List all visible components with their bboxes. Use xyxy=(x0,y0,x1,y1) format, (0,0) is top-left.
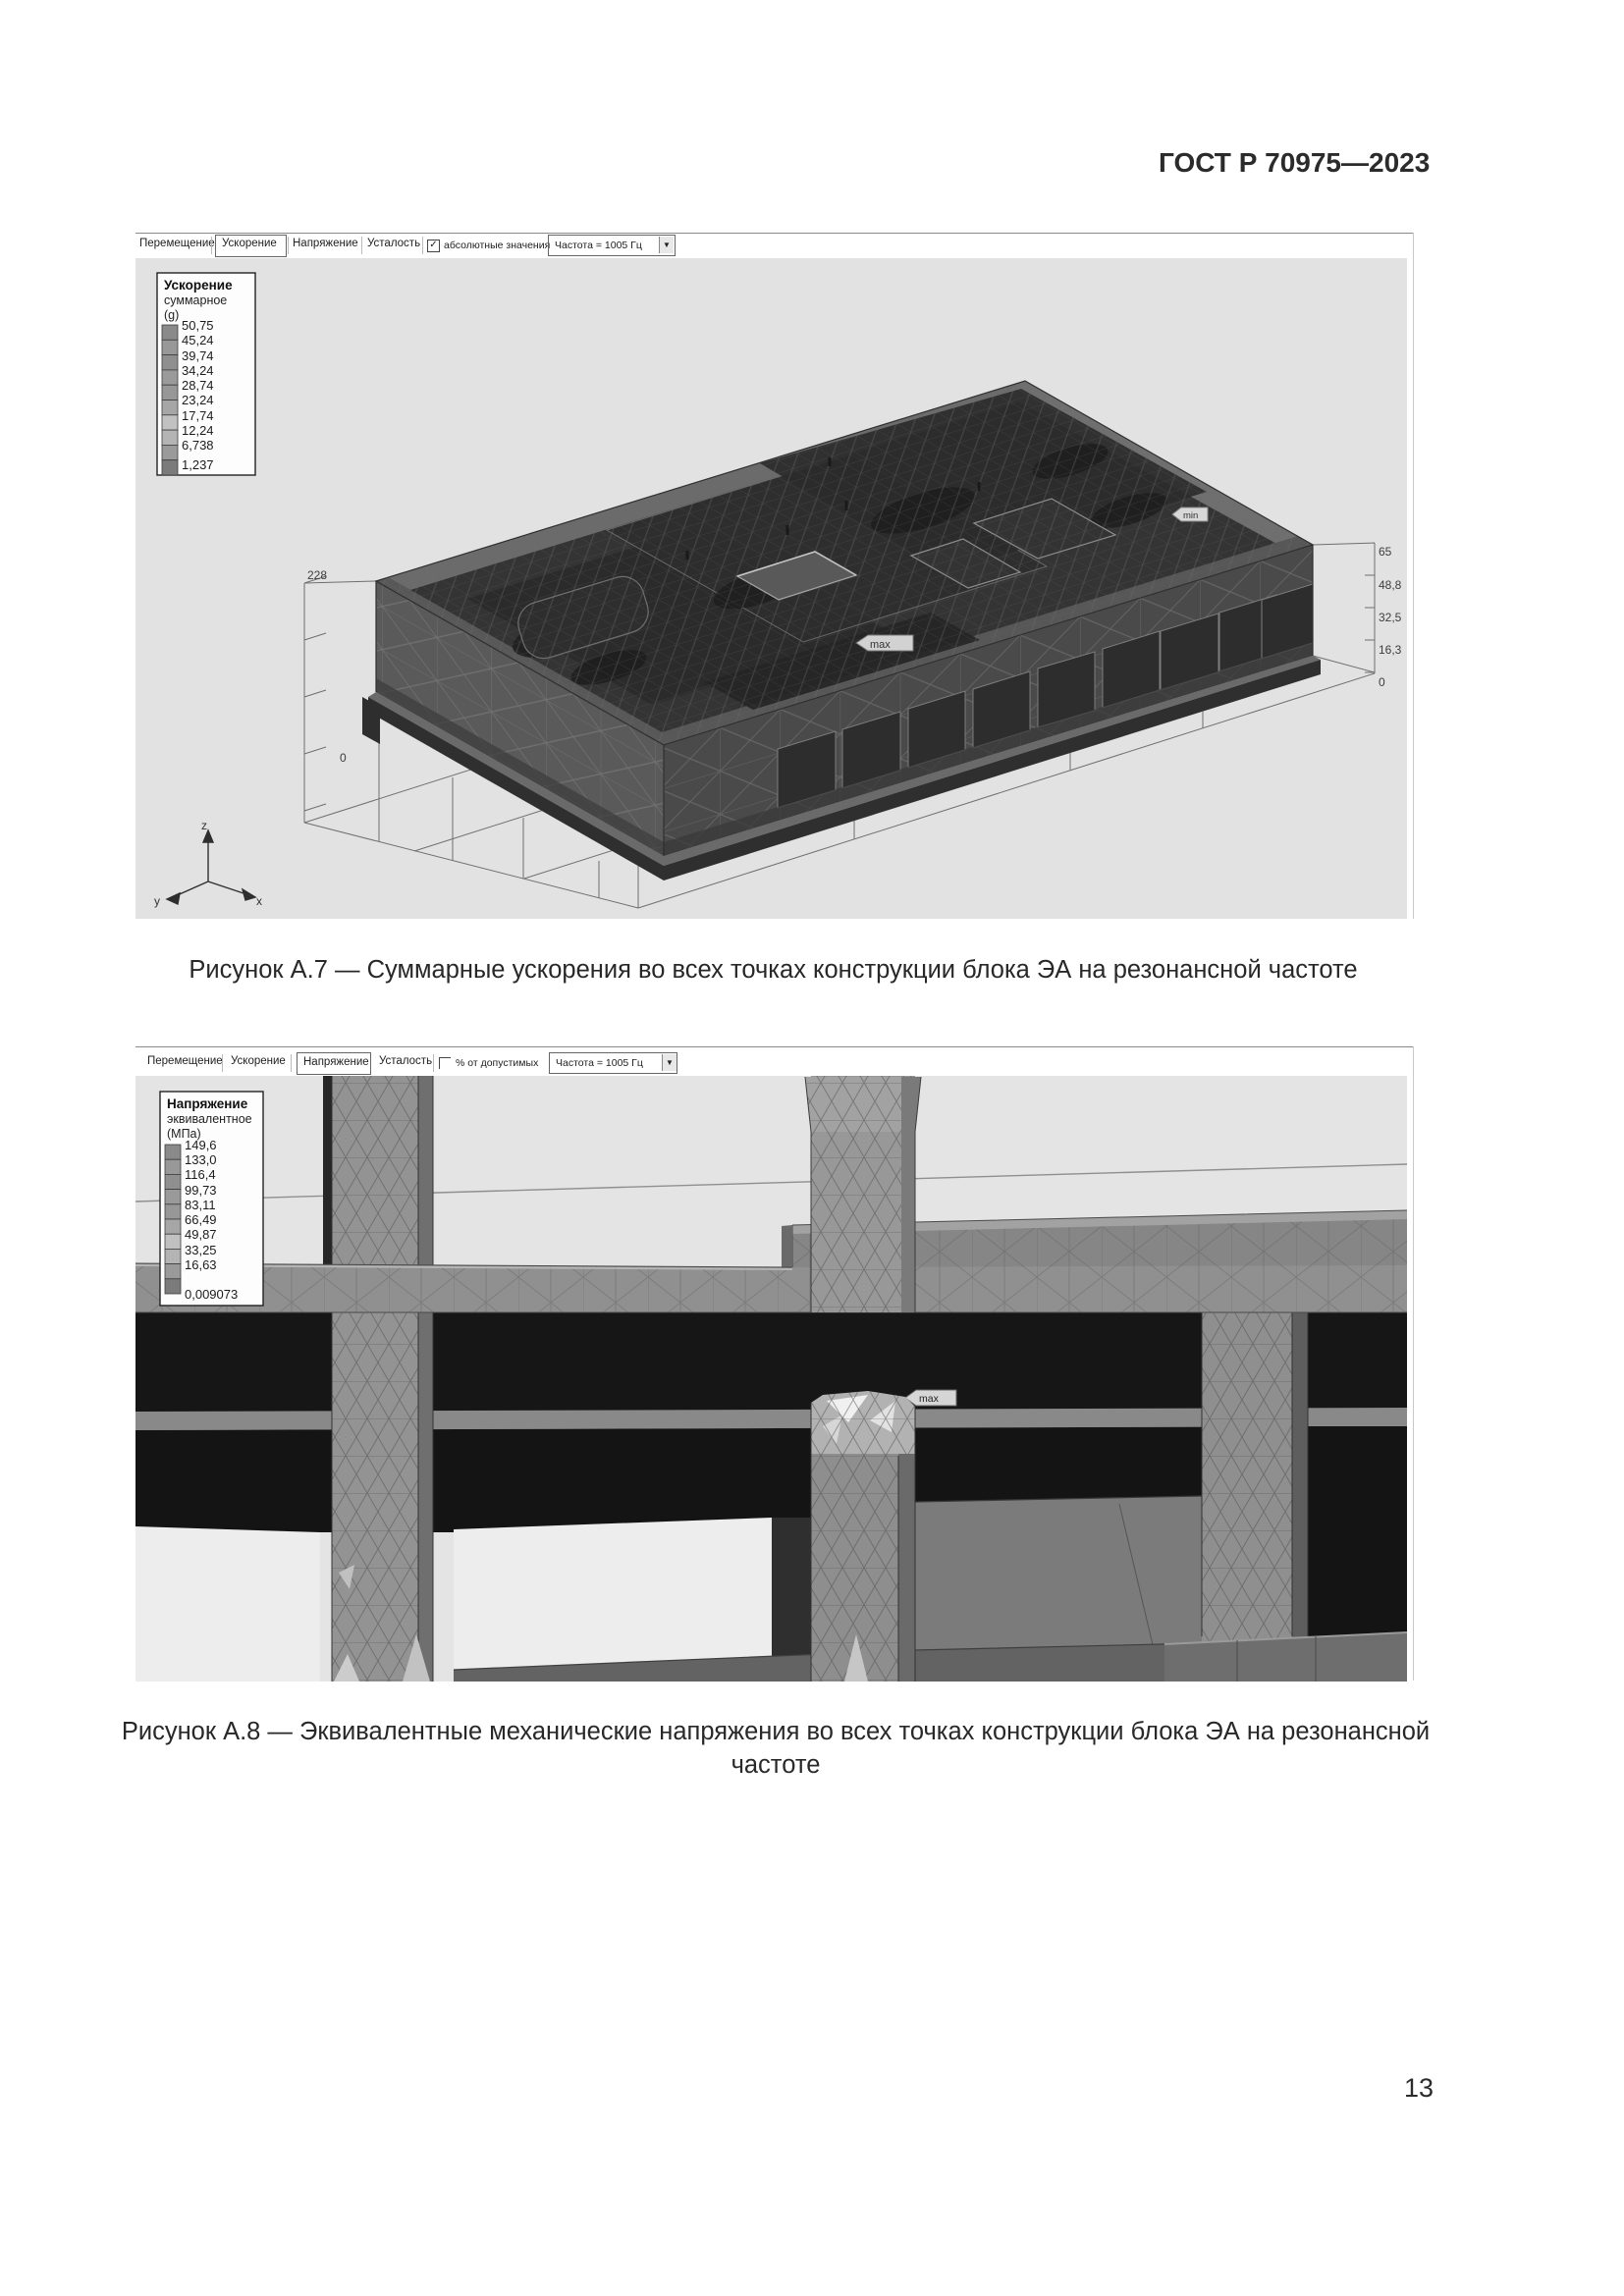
svg-text:228: 228 xyxy=(307,568,327,582)
svg-text:17,74: 17,74 xyxy=(182,408,214,423)
svg-text:50,75: 50,75 xyxy=(182,318,214,333)
svg-text:0: 0 xyxy=(1379,675,1385,689)
svg-text:83,11: 83,11 xyxy=(185,1198,216,1212)
svg-text:16,63: 16,63 xyxy=(185,1257,217,1272)
svg-text:суммарное: суммарное xyxy=(164,294,227,307)
svg-text:1,237: 1,237 xyxy=(182,457,214,472)
svg-text:y: y xyxy=(154,894,160,908)
svg-text:max: max xyxy=(870,639,891,651)
svg-text:133,0: 133,0 xyxy=(185,1152,217,1167)
svg-text:min: min xyxy=(1183,510,1198,521)
svg-text:z: z xyxy=(201,819,207,832)
svg-text:6,738: 6,738 xyxy=(182,438,214,453)
svg-text:эквивалентное: эквивалентное xyxy=(167,1112,252,1126)
svg-text:116,4: 116,4 xyxy=(185,1167,216,1182)
svg-text:33,25: 33,25 xyxy=(185,1243,217,1257)
svg-text:16,3: 16,3 xyxy=(1379,643,1402,657)
svg-text:66,49: 66,49 xyxy=(185,1212,217,1227)
svg-text:Напряжение: Напряжение xyxy=(167,1096,248,1111)
svg-text:12,24: 12,24 xyxy=(182,423,214,438)
svg-text:32,5: 32,5 xyxy=(1379,611,1402,624)
svg-text:(g): (g) xyxy=(164,308,179,322)
svg-text:max: max xyxy=(919,1393,940,1405)
svg-text:0: 0 xyxy=(340,751,347,765)
svg-text:45,24: 45,24 xyxy=(182,333,214,347)
svg-text:65: 65 xyxy=(1379,545,1392,559)
svg-text:0,009073: 0,009073 xyxy=(185,1287,238,1302)
svg-text:149,6: 149,6 xyxy=(185,1138,217,1152)
svg-text:28,74: 28,74 xyxy=(182,378,214,393)
svg-text:Ускорение: Ускорение xyxy=(164,278,233,293)
svg-text:99,73: 99,73 xyxy=(185,1183,217,1198)
svg-text:x: x xyxy=(256,894,262,908)
svg-text:39,74: 39,74 xyxy=(182,348,214,363)
svg-text:23,24: 23,24 xyxy=(182,393,214,407)
svg-text:49,87: 49,87 xyxy=(185,1227,217,1242)
svg-text:48,8: 48,8 xyxy=(1379,578,1402,592)
svg-text:34,24: 34,24 xyxy=(182,363,214,378)
